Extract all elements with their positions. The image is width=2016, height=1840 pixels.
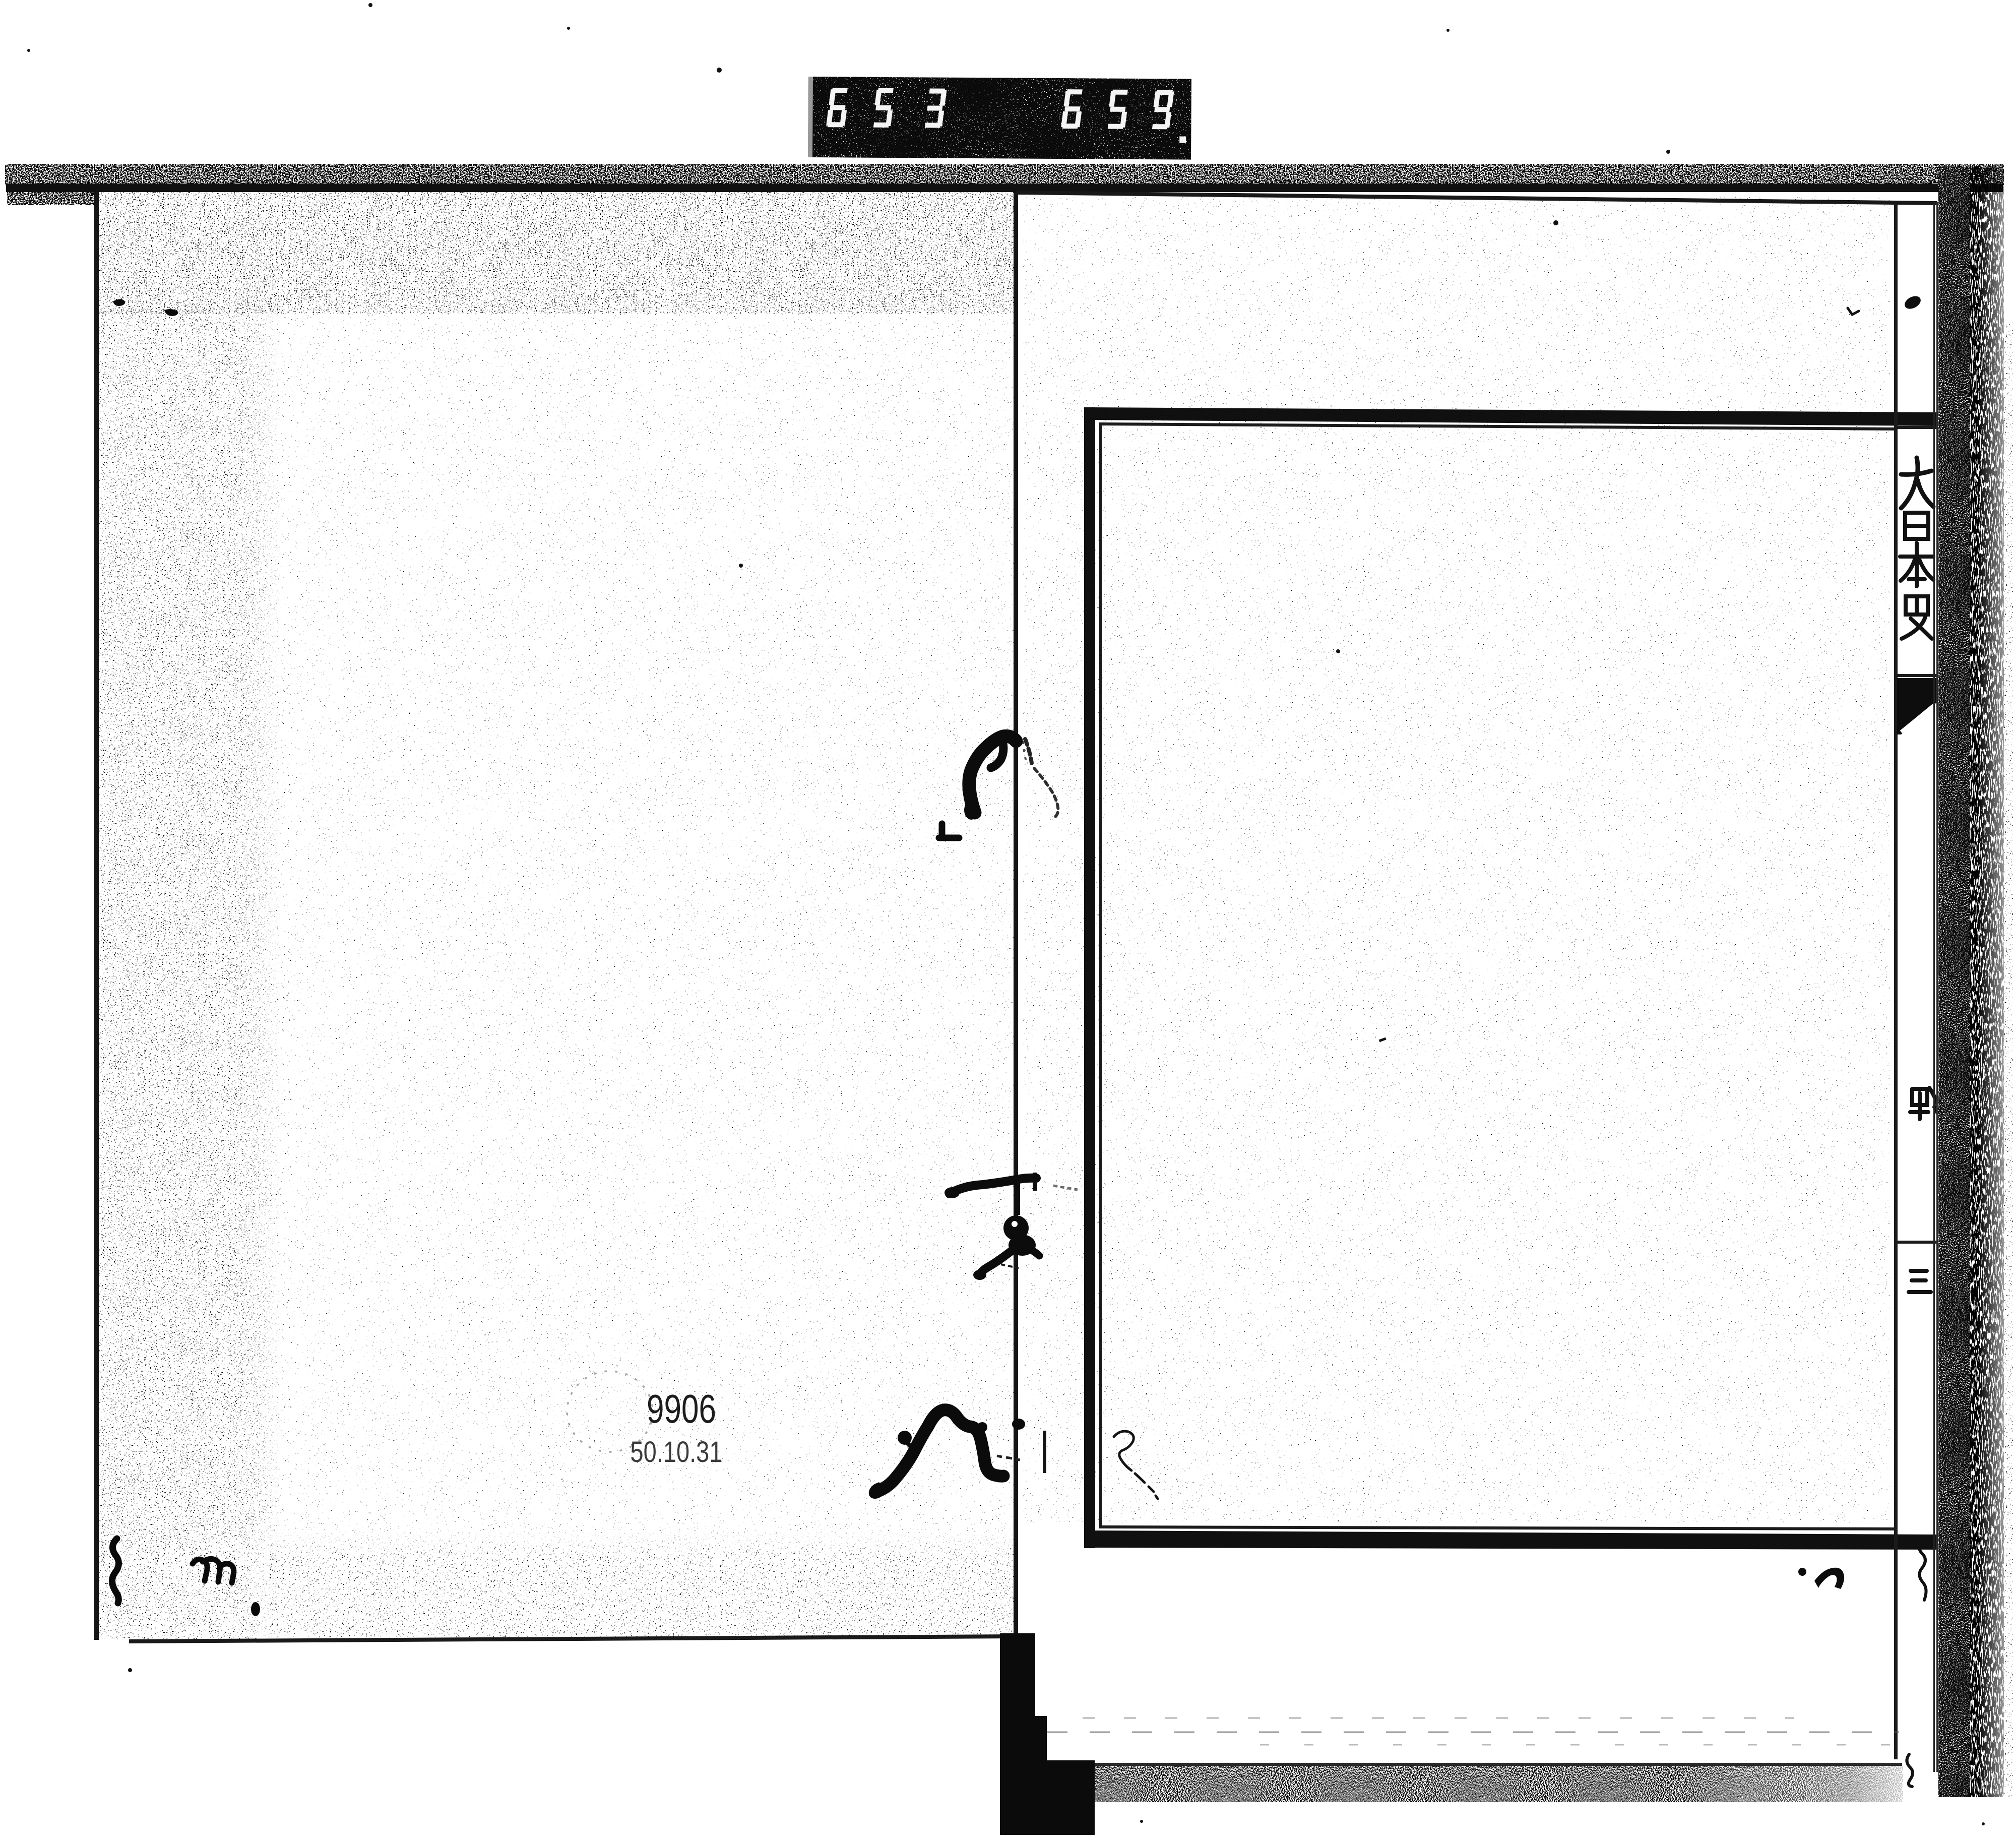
svg-text:50.10.31: 50.10.31 bbox=[631, 1436, 723, 1468]
svg-text:9906: 9906 bbox=[647, 1387, 716, 1432]
